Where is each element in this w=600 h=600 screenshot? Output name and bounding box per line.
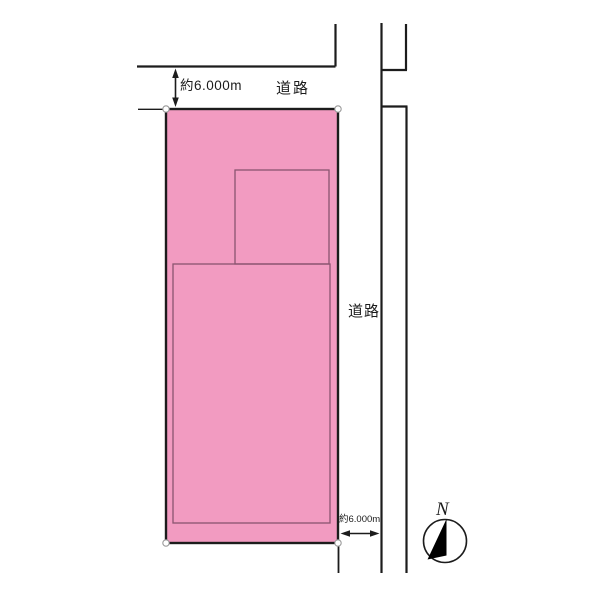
compass-north-label: N xyxy=(436,500,449,519)
north-road-width-label: 約6.000m xyxy=(180,79,242,93)
compass xyxy=(424,519,467,563)
parcel-corner-marker-top-right xyxy=(335,106,341,112)
parcel-corner-marker-bottom-left xyxy=(163,540,169,546)
north-road-label: 道路 xyxy=(276,81,310,96)
parcel-corner-marker-top-left xyxy=(163,106,169,112)
parcel-corner-marker-bottom-right xyxy=(335,540,341,546)
east-road-label: 道路 xyxy=(348,304,380,319)
east-road-width-label: 約6.000m xyxy=(339,515,380,525)
north-road-width-dimension-arrow xyxy=(172,69,179,108)
east-road-width-dimension-arrow xyxy=(341,530,380,536)
parcel-shape xyxy=(166,109,338,543)
site-plan: 約6.000m 道路 道路 約6.000m N xyxy=(0,0,600,600)
